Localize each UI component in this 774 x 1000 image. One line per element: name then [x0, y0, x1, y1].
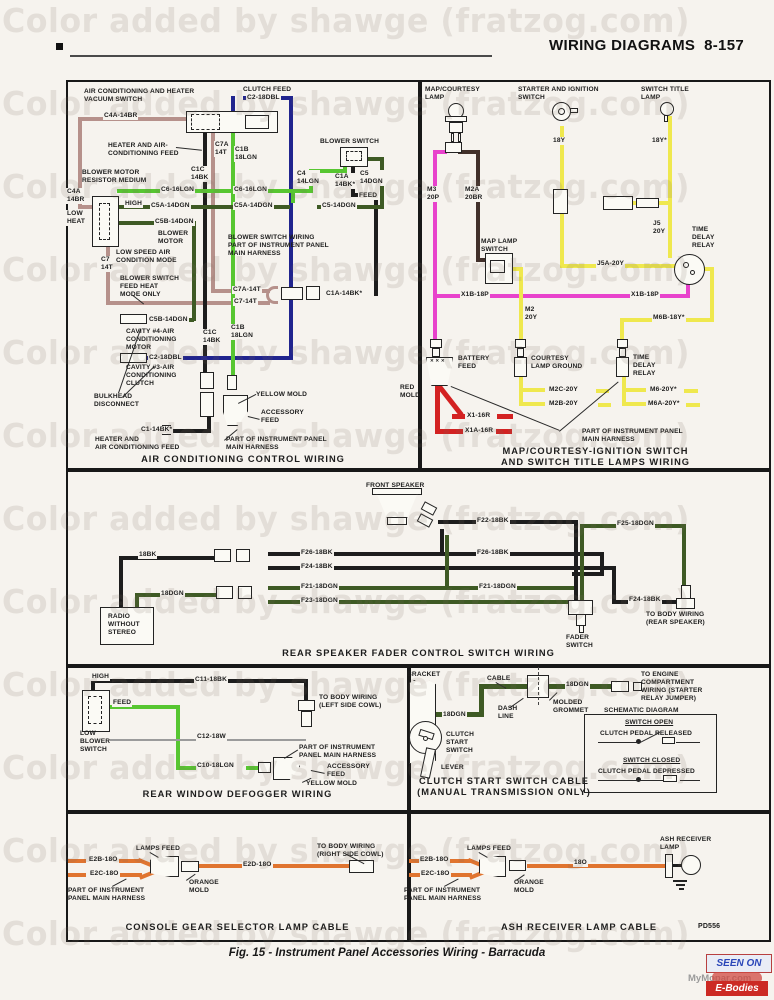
wire-y [668, 116, 672, 258]
header-section-title: WIRING DIAGRAMS [549, 37, 695, 54]
wire-label: LOW SPEED AIR CONDITION MODE [116, 249, 177, 265]
wire-y [686, 403, 700, 407]
wire-label: M3 20P [426, 186, 440, 202]
wire-label: 18DGN [565, 681, 590, 689]
connector-shape [664, 115, 668, 122]
connector-shape [676, 598, 695, 609]
wire-or [409, 873, 420, 877]
wire-dgn [135, 593, 139, 608]
connector-shape [538, 667, 539, 705]
wire-label: AIR CONDITIONING AND HEATER VACUUM SWITC… [84, 88, 194, 104]
wire-bk [304, 679, 308, 702]
wire-lgn [176, 766, 198, 770]
wire-label: M6A-20Y* [647, 400, 681, 408]
wire-y [560, 212, 564, 268]
wire-rd [496, 429, 512, 434]
panel-caption: CLUTCH START SWITCH CABLE (MANUAL TRANSM… [409, 776, 599, 798]
wire-label: J5 20Y [652, 220, 666, 236]
wire-lgn [291, 189, 295, 203]
panel-caption: REAR WINDOW DEFOGGER WIRING [66, 789, 409, 800]
wire-label: ASH RECEIVER LAMP [660, 836, 711, 852]
connector-shape [445, 142, 462, 153]
wire-label: C4A-14BR [103, 112, 138, 120]
wire-or [527, 864, 667, 868]
wire-label: HIGH [124, 200, 143, 208]
connector-shape [238, 586, 252, 599]
connector-shape [679, 888, 684, 890]
wire-label: HEATER AND AIR- CONDITIONING FEED [108, 142, 179, 158]
orange-mold-connector [150, 856, 179, 877]
connector-shape [346, 151, 362, 161]
wire-label: TO BODY WIRING (LEFT SIDE COWL) [319, 694, 381, 710]
panel-caption: ASH RECEIVER LAMP CABLE [429, 922, 729, 933]
wire-label: C10-18LGN [196, 762, 235, 770]
wire-label: STARTER AND IGNITION SWITCH [518, 86, 599, 102]
header-page-number: 8-157 [704, 37, 744, 54]
wire-label: C2-18DBL [246, 94, 281, 102]
e-bodies-badge: E-Bodies [706, 981, 768, 996]
connector-shape [306, 286, 320, 300]
connector-shape [663, 775, 677, 782]
wire-label: YELLOW MOLD [306, 780, 357, 788]
pointer-line [676, 742, 700, 743]
wire-rd [435, 429, 463, 434]
wire-label: MAP LAMP SWITCH [481, 238, 517, 254]
wire-label: TIME DELAY RELAY [633, 354, 656, 378]
watermark-text: Color added by shawge (fratzog.com) [2, 4, 743, 37]
wire-label: SWITCH TITLE LAMP [641, 86, 689, 102]
wire-y [710, 267, 714, 322]
seen-on-badge: SEEN ON [706, 954, 772, 973]
wire-label: 18DGN [160, 590, 185, 598]
connector-shape [509, 860, 526, 871]
wire-or [68, 859, 86, 863]
wire-label: X1A-16R [464, 427, 494, 435]
wire-label: C6-16LGN [160, 186, 195, 194]
wire-label: 18Y [552, 137, 566, 145]
wire-label: C5-14DGN [321, 202, 357, 210]
connector-shape [120, 353, 147, 363]
wire-label: C7-14T [233, 298, 258, 306]
wire-label: C2-18DBL [148, 354, 183, 362]
wire-label: F21-18DGN [478, 583, 517, 591]
wire-label: F24-18BK [628, 596, 662, 604]
connector-shape [266, 286, 278, 304]
wire-label: M6-20Y* [649, 386, 678, 394]
wire-label: C1C 14BK [202, 329, 221, 345]
connector-shape [423, 736, 428, 741]
wire-y [560, 126, 564, 192]
connector-shape [681, 855, 701, 875]
wire-label: ACCESSORY FEED [327, 763, 370, 779]
wire-label: CLUTCH PEDAL DEPRESSED [598, 768, 695, 776]
wire-label: HIGH [91, 673, 110, 681]
connector-shape [683, 262, 689, 268]
wire-label: ORANGE MOLD [514, 879, 544, 895]
connector-shape [216, 586, 233, 599]
connector-shape [281, 287, 303, 300]
switch-title-lamp [660, 102, 674, 116]
connector-shape [181, 861, 199, 872]
wire-label: PART OF INSTRUMENT PANEL MAIN HARNESS [226, 436, 327, 452]
wire-label: CLUTCH START SWITCH [446, 731, 474, 755]
wire-label: BATTERY FEED [458, 355, 489, 371]
fuse-holder [603, 196, 633, 210]
wire-label: F25-18DGN [616, 520, 655, 528]
wire-label: LOW HEAT [66, 210, 86, 226]
connector-shape [514, 357, 527, 377]
wire-label: X1B-18P [630, 291, 660, 299]
wire-lgn [176, 705, 180, 770]
wire-label: X1-16R [466, 412, 491, 420]
wire-dgn [580, 524, 584, 602]
wire-dgn [479, 686, 484, 717]
wire-dgn [682, 524, 686, 590]
connector-shape [619, 348, 626, 357]
wire-lgn [117, 189, 313, 193]
wire-label: ✕ ✕ ✕ [430, 358, 445, 364]
connector-shape [245, 115, 269, 129]
connector-shape [515, 339, 526, 348]
wire-label: HEATER AND AIR CONDITIONING FEED [95, 436, 179, 452]
wire-label: SWITCH CLOSED [623, 757, 680, 765]
wire-label: C5B-14DGN [154, 218, 195, 226]
wire-y [684, 389, 698, 393]
wire-bk [171, 429, 211, 433]
panel-caption: MAP/COURTESY-IGNITION SWITCH AND SWITCH … [420, 446, 771, 468]
wire-br [476, 150, 480, 262]
wire-label: COURTESY LAMP GROUND [531, 355, 582, 371]
wire-label: M2A 20BR [464, 186, 483, 202]
wire-label: 18DGN [442, 711, 467, 719]
connector-shape [227, 375, 237, 390]
wire-dgn [366, 157, 380, 161]
figure-caption: Fig. 15 - Instrument Panel Accessories W… [0, 947, 774, 959]
wire-label: LOW BLOWER SWITCH [80, 730, 110, 754]
wire-label: C4 14LGN [296, 170, 320, 186]
wire-label: ACCESSORY FEED [261, 409, 304, 425]
wire-label: TO BODY WIRING (RIGHT SIDE COWL) [317, 843, 384, 859]
wire-label: C5A-14DGN [150, 202, 191, 210]
connector-shape [120, 314, 147, 324]
wire-label: E2C-18O [89, 870, 120, 878]
wire-or [68, 873, 86, 877]
wire-label: CLUTCH FEED [243, 86, 291, 94]
wire-label: BULKHEAD DISCONNECT [94, 393, 139, 409]
wire-label: BRACKET [407, 671, 440, 679]
header-bullet [56, 43, 63, 50]
wire-label: C1B 18LGN [234, 146, 258, 162]
wire-label: E2B-18O [88, 856, 119, 864]
connector-shape [490, 260, 505, 273]
connector-shape [579, 625, 584, 633]
wire-bk [574, 520, 578, 604]
wire-label: CAVITY #4-AIR CONDITIONING MOTOR [126, 328, 177, 352]
connector-shape [676, 884, 685, 886]
panel-caption: AIR CONDITIONING CONTROL WIRING [66, 454, 420, 465]
wire-label: TO ENGINE COMPARTMENT WIRING (STARTER RE… [641, 671, 702, 703]
fuse [553, 189, 568, 214]
wire-dgn [192, 221, 196, 321]
connector-shape [430, 339, 442, 348]
wire-dgn [445, 535, 449, 589]
connector-shape [258, 762, 271, 773]
wire-label: J5A-20Y [596, 260, 625, 268]
wire-label: C5A-14DGN [233, 202, 274, 210]
wire-label: M2 20Y [524, 306, 538, 322]
wire-bk [119, 556, 217, 560]
pointer-line [598, 742, 638, 743]
wire-label: C1-14BK* [140, 426, 173, 434]
wire-label: BLOWER SWITCH FEED HEAT MODE ONLY [120, 275, 179, 299]
wire-label: PART OF INSTRUMENT PANEL MAIN HARNESS [582, 428, 683, 444]
wire-label: FEED [358, 192, 378, 200]
connector-shape [570, 108, 578, 113]
wire-bk [572, 572, 604, 576]
connector-shape [387, 517, 407, 525]
wire-rd [452, 414, 465, 419]
connector-shape [517, 348, 524, 357]
wire-label: C5B-14DGN [148, 316, 189, 324]
wire-label: F22-18BK [476, 517, 510, 525]
wire-label: C4A 14BR [66, 188, 85, 204]
wire-label: MOLDED GROMMET [553, 699, 588, 715]
wire-label: CLUTCH PEDAL RELEASED [600, 730, 692, 738]
connector-shape [611, 681, 629, 692]
time-delay-relay [674, 254, 705, 285]
connector-shape [617, 339, 628, 348]
pointer-line [680, 780, 700, 781]
connector-shape [449, 122, 463, 133]
wire-label: BLOWER MOTOR RESISTOR MEDIUM [82, 169, 146, 185]
wire-label: PART OF INSTRUMENT PANEL MAIN HARNESS [404, 887, 481, 903]
wire-label: F26-18BK [476, 549, 510, 557]
wire-dbl [289, 96, 293, 360]
wire-label: X1B-18P [460, 291, 490, 299]
panel-caption: REAR SPEAKER FADER CONTROL SWITCH WIRING [66, 648, 771, 659]
wire-label: DASH LINE [498, 705, 517, 721]
wire-y [622, 388, 646, 392]
connector-shape [301, 711, 312, 727]
wire-label: BLOWER MOTOR [158, 230, 188, 246]
wire-label: C1C 14BK [190, 166, 209, 182]
wire-label: M2B-20Y [548, 400, 579, 408]
connector-shape [200, 392, 214, 417]
connector-shape [214, 549, 231, 562]
orange-mold-connector [479, 856, 506, 877]
panel-caption: CONSOLE GEAR SELECTOR LAMP CABLE [66, 922, 409, 933]
bulkhead-connector [200, 372, 214, 389]
wire-label: FEED [112, 699, 132, 707]
wire-label: CABLE [487, 675, 510, 683]
connector-shape [673, 880, 687, 882]
wire-label: BLOWER SWITCH WIRING PART OF INSTRUMENT … [228, 234, 329, 258]
connector-shape [558, 108, 565, 115]
wire-label: C12-18W [196, 733, 227, 741]
wire-label: TIME DELAY RELAY [692, 226, 715, 250]
connector-shape [458, 133, 461, 142]
wire-label: CAVITY #3-AIR CONDITIONING CLUTCH [126, 364, 177, 388]
wire-label: FRONT SPEAKER [366, 482, 424, 490]
wire-tan [106, 246, 110, 303]
wire-label: PD556 [698, 923, 720, 931]
wire-label: F24-18BK [300, 563, 334, 571]
wire-y [622, 402, 646, 406]
wire-rd [497, 414, 513, 419]
wire-label: C5 14DGN [359, 170, 384, 186]
connector-shape [690, 270, 695, 275]
wire-label: E2B-18O [419, 856, 450, 864]
wire-label: LAMPS FEED [467, 845, 511, 853]
connector-shape [451, 133, 454, 142]
header-rule [70, 55, 492, 57]
wire-label: YELLOW MOLD [256, 391, 307, 399]
wire-label: C7A 14T [214, 141, 230, 157]
wire-label: F21-18DGN [300, 583, 339, 591]
wire-y [598, 403, 611, 407]
wire-label: MAP/COURTESY LAMP [425, 86, 480, 102]
wire-bk [119, 556, 123, 609]
wire-label: RED MOLD [400, 384, 420, 400]
pointer-line [598, 780, 664, 781]
connector-shape [662, 737, 675, 744]
wire-label: PART OF INSTRUMENT PANEL MAIN HARNESS [68, 887, 145, 903]
wire-label: F23-18DGN [300, 597, 339, 605]
wire-label: 18O [573, 859, 588, 867]
wire-label: C1B 18LGN [230, 324, 254, 340]
wire-label: BLOWER SWITCH [320, 138, 379, 146]
wire-label: 18BK [138, 551, 157, 559]
wire-label: LEVER [441, 764, 464, 772]
connector-shape [616, 357, 629, 377]
wire-label: ORANGE MOLD [189, 879, 219, 895]
wire-label: E2C-18O [420, 870, 451, 878]
page-header: WIRING DIAGRAMS 8-157 [549, 37, 744, 54]
wire-y [519, 388, 545, 392]
ash-receiver-lamp [665, 854, 673, 878]
connector-shape [99, 203, 110, 240]
wire-label: C6-16LGN [233, 186, 268, 194]
wire-label: TO BODY WIRING (REAR SPEAKER) [646, 611, 705, 627]
wire-bk [612, 566, 616, 604]
connector-shape [432, 348, 440, 357]
wire-label: F26-18BK [300, 549, 334, 557]
connector-shape [191, 114, 220, 130]
wire-label: SWITCH OPEN [625, 719, 673, 727]
car-silhouette-icon [712, 972, 762, 981]
wire-label: PART OF INSTRUMENT PANEL MAIN HARNESS [299, 744, 376, 760]
wire-label: C1A 14BK* [334, 173, 356, 189]
wire-label: RADIO WITHOUT STEREO [108, 613, 140, 637]
wire-label: C7 14T [100, 256, 114, 272]
wire-bk [440, 529, 444, 555]
wire-pk [433, 150, 437, 344]
manual-page: WIRING DIAGRAMS 8-157 Color added by sha… [0, 0, 774, 1000]
connector-shape [88, 696, 102, 724]
wire-label: LAMPS FEED [136, 845, 180, 853]
fader-switch [568, 600, 593, 615]
wire-label: C7A-14T [232, 286, 262, 294]
wire-label: SCHEMATIC DIAGRAM [604, 707, 679, 715]
wire-label: C11-18BK [194, 676, 228, 684]
wire-label: M6B-18Y* [652, 314, 686, 322]
connector-shape [636, 198, 659, 208]
connector-shape [236, 549, 250, 562]
connector-shape [298, 700, 315, 711]
wire-y [519, 402, 545, 406]
wire-label: 18Y* [651, 137, 668, 145]
wire-or [198, 864, 350, 868]
wire-label: M2C-20Y [548, 386, 579, 394]
wire-label: E2D-18O [242, 861, 273, 869]
wire-label: C1A-14BK* [325, 290, 363, 298]
